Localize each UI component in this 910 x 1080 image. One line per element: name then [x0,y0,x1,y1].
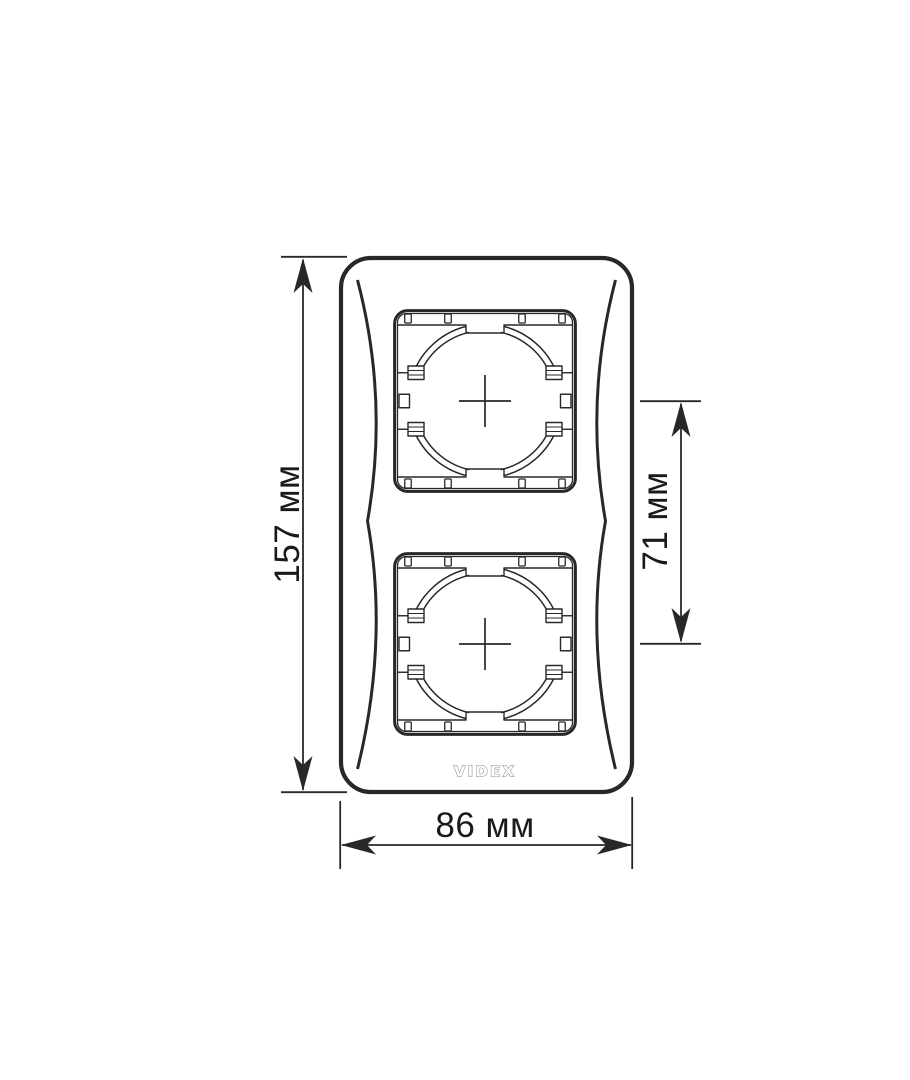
spacing-dimension-label: 71 мм [636,471,675,570]
drawing-canvas: VIDEX 157 мм 86 мм [0,0,910,1080]
videx-logo: VIDEX [454,763,516,781]
technical-drawing: VIDEX 157 мм 86 мм [0,0,910,1080]
height-dimension-label: 157 мм [268,464,307,583]
width-dimension-label: 86 мм [435,806,534,845]
